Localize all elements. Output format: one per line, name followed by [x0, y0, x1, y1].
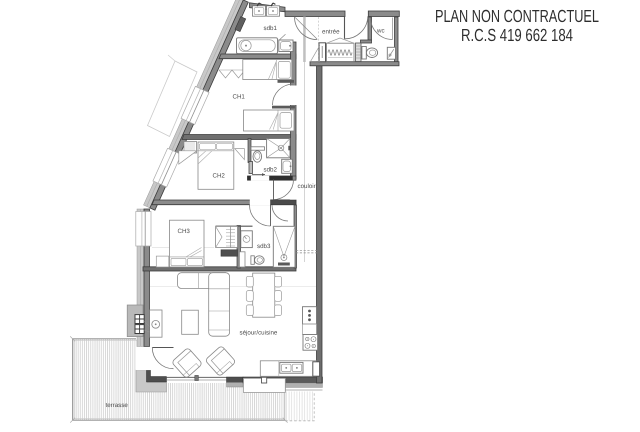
svg-text:CH3: CH3: [178, 228, 191, 235]
svg-text:sdb2: sdb2: [264, 167, 278, 174]
svg-text:wc: wc: [376, 28, 385, 35]
svg-text:entrée: entrée: [322, 29, 340, 36]
svg-text:séjour/cuisine: séjour/cuisine: [240, 330, 278, 337]
svg-text:CH2: CH2: [213, 173, 226, 180]
svg-text:sdb1: sdb1: [264, 25, 278, 32]
svg-text:terrasse: terrasse: [106, 402, 129, 409]
svg-text:PLAN NON CONTRACTUEL: PLAN NON CONTRACTUEL: [435, 6, 599, 26]
svg-text:R.C.S 419 662 184: R.C.S 419 662 184: [461, 25, 573, 45]
svg-text:sdb3: sdb3: [257, 243, 271, 250]
svg-text:couloir: couloir: [298, 183, 316, 190]
svg-text:CH1: CH1: [233, 94, 246, 101]
